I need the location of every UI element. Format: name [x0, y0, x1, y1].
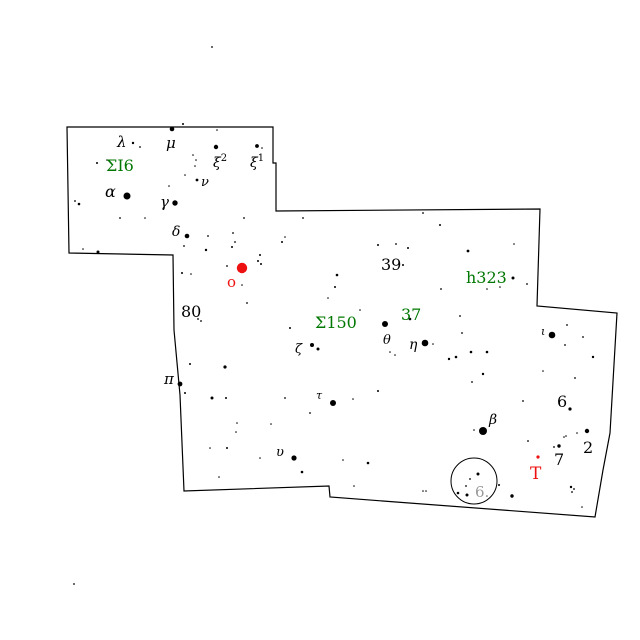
- label-γ: γ: [160, 193, 169, 211]
- star: [184, 392, 186, 394]
- star: [218, 476, 220, 478]
- star: [367, 462, 370, 465]
- label-η: η: [409, 337, 418, 353]
- star: [246, 302, 248, 304]
- label-θ: θ: [383, 333, 391, 348]
- star: [422, 212, 424, 214]
- star: [183, 245, 185, 247]
- star: [581, 506, 583, 508]
- star: [466, 494, 469, 497]
- star: [498, 484, 500, 486]
- star: [124, 193, 131, 200]
- star: [184, 174, 186, 176]
- star: [168, 185, 170, 187]
- star: [172, 200, 177, 205]
- star: [473, 429, 475, 431]
- star: [565, 435, 567, 437]
- star: [336, 274, 339, 277]
- label-δ: δ: [172, 224, 180, 240]
- star: [225, 397, 227, 399]
- star: [259, 254, 261, 256]
- label-α: α: [105, 182, 116, 201]
- star: [527, 440, 529, 442]
- star: [181, 272, 183, 274]
- label-π: π: [163, 370, 175, 388]
- label-2: 2: [583, 438, 593, 457]
- star: [241, 284, 243, 286]
- star: [182, 123, 184, 125]
- T-variable: [536, 455, 539, 458]
- star: [510, 494, 513, 497]
- star: [479, 427, 487, 435]
- star-chart: λμξ2ξ1ναγδ8039θηζπτυβι627ΣI6Σ15037h323oT…: [0, 0, 640, 640]
- star: [257, 260, 259, 262]
- star: [353, 485, 355, 487]
- star: [553, 446, 555, 448]
- star: [457, 492, 460, 495]
- label-Σ150: Σ150: [315, 313, 357, 332]
- star: [486, 351, 489, 354]
- star: [585, 429, 589, 433]
- star: [440, 288, 442, 290]
- star: [574, 377, 576, 379]
- star: [190, 273, 192, 275]
- star: [260, 263, 262, 265]
- star: [542, 370, 544, 372]
- star: [243, 217, 245, 219]
- star: [259, 457, 261, 459]
- star: [482, 373, 484, 375]
- star: [402, 264, 404, 266]
- star: [270, 423, 272, 425]
- star: [82, 248, 84, 250]
- star: [302, 217, 304, 219]
- star: [461, 332, 463, 334]
- star: [448, 358, 450, 360]
- label-τ: τ: [316, 389, 323, 402]
- star: [226, 447, 228, 449]
- star: [139, 146, 141, 148]
- star: [522, 400, 524, 402]
- star: [571, 491, 573, 493]
- label-o: o: [227, 273, 236, 291]
- star: [96, 162, 98, 164]
- star: [234, 241, 236, 243]
- star: [359, 309, 361, 311]
- label-ι: ι: [541, 325, 545, 338]
- star: [425, 490, 427, 492]
- star: [467, 250, 470, 253]
- label-6.: 6.: [475, 483, 489, 501]
- star: [377, 244, 379, 246]
- star: [289, 327, 291, 329]
- star: [512, 277, 515, 280]
- label-6: 6: [557, 392, 567, 411]
- star: [291, 455, 296, 460]
- star: [486, 288, 488, 290]
- label-μ: μ: [166, 134, 176, 152]
- star: [382, 321, 388, 327]
- star: [178, 382, 183, 387]
- star: [170, 127, 175, 132]
- star: [570, 486, 572, 488]
- star: [422, 490, 424, 492]
- star: [455, 356, 458, 359]
- star: [592, 356, 594, 358]
- star: [582, 336, 584, 338]
- label-ΣI6: ΣI6: [106, 156, 134, 175]
- star: [194, 165, 196, 167]
- star: [214, 145, 218, 149]
- star: [471, 381, 473, 383]
- star: [342, 459, 344, 461]
- star: [236, 422, 238, 424]
- star: [557, 444, 560, 447]
- star: [211, 46, 213, 48]
- label-λ: λ: [116, 133, 127, 151]
- star: [334, 286, 336, 288]
- star: [564, 344, 566, 346]
- star: [284, 397, 286, 399]
- label-39: 39: [381, 255, 401, 274]
- star: [235, 431, 237, 433]
- star: [526, 283, 528, 285]
- star: [73, 583, 75, 585]
- star: [78, 203, 81, 206]
- star: [513, 243, 515, 245]
- label-37: 37: [401, 305, 421, 324]
- star: [377, 390, 379, 392]
- star: [327, 297, 329, 299]
- star: [566, 324, 568, 326]
- star: [573, 488, 575, 490]
- star: [97, 251, 100, 254]
- star: [207, 235, 209, 237]
- star: [226, 265, 228, 267]
- omicron-variable: [237, 263, 247, 273]
- star: [549, 332, 556, 339]
- star: [211, 397, 214, 400]
- star: [205, 249, 207, 251]
- star: [231, 246, 233, 248]
- star: [209, 447, 211, 449]
- star: [317, 348, 320, 351]
- star: [195, 159, 197, 161]
- label-β: β: [488, 412, 497, 428]
- star: [395, 243, 397, 245]
- label-80: 80: [181, 302, 201, 321]
- star: [563, 436, 565, 438]
- star: [407, 247, 409, 249]
- star: [459, 315, 461, 317]
- star: [74, 200, 76, 202]
- star: [422, 340, 429, 347]
- star: [196, 179, 199, 182]
- star: [568, 407, 571, 410]
- star: [255, 144, 259, 148]
- label-T: T: [530, 464, 542, 484]
- star: [389, 351, 391, 353]
- star: [144, 217, 146, 219]
- star: [216, 129, 218, 131]
- sky-map-canvas: λμξ2ξ1ναγδ8039θηζπτυβι627ΣI6Σ15037h323oT…: [0, 0, 640, 640]
- star: [310, 343, 314, 347]
- star: [284, 236, 286, 238]
- star: [394, 354, 396, 356]
- label-7: 7: [554, 450, 564, 469]
- star: [189, 363, 191, 365]
- label-υ: υ: [276, 445, 284, 460]
- star: [223, 365, 226, 368]
- star: [232, 232, 234, 234]
- label-ν: ν: [201, 175, 209, 190]
- star: [330, 400, 336, 406]
- star: [469, 478, 471, 480]
- star: [301, 471, 304, 474]
- star: [439, 224, 441, 226]
- star: [470, 351, 473, 354]
- star: [119, 217, 121, 219]
- star: [477, 473, 480, 476]
- star: [185, 234, 190, 239]
- star: [576, 432, 578, 434]
- label-ζ: ζ: [295, 342, 303, 357]
- label-h323: h323: [466, 268, 507, 287]
- star: [261, 147, 263, 149]
- star: [432, 343, 434, 345]
- star: [132, 142, 134, 144]
- star: [281, 241, 283, 243]
- star: [309, 412, 311, 414]
- star: [352, 398, 354, 400]
- star: [192, 154, 194, 156]
- star: [465, 485, 467, 487]
